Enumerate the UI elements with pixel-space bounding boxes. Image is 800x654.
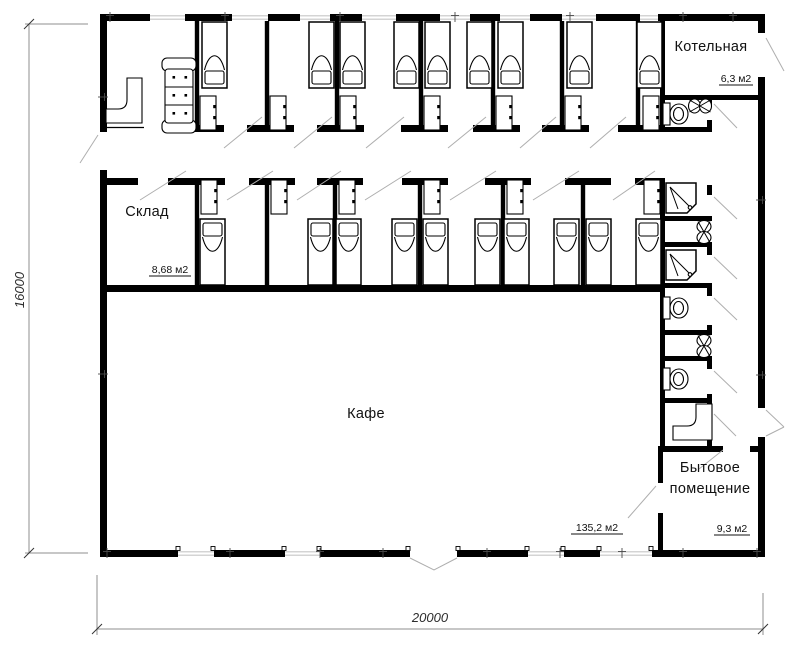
- bed-icon: [392, 219, 417, 285]
- room-label-boiler: Котельная: [675, 39, 748, 55]
- room-cafe: Кафе 135,2 м2: [347, 406, 623, 534]
- sofa-icon: [162, 58, 196, 133]
- bed-icon: [504, 219, 529, 285]
- floor-plan: 16000 20000 Котельная 6,3 м2 Склад 8,68 …: [0, 0, 800, 654]
- toilet-icon: [663, 103, 688, 125]
- wardrobe-icon: [507, 180, 523, 214]
- height-dimension-label: 16000: [12, 271, 27, 308]
- wardrobe-icon: [201, 180, 217, 214]
- wardrobe-icon: [424, 180, 440, 214]
- room-label-utility-line1: Бытовое: [680, 460, 740, 476]
- bed-icon: [467, 22, 492, 88]
- sink-icon: [697, 335, 711, 358]
- room-boiler: Котельная 6,3 м2: [675, 39, 753, 85]
- sink-icon: [689, 99, 712, 113]
- room-label-cafe: Кафе: [347, 406, 385, 422]
- room-area-cafe: 135,2 м2: [576, 522, 618, 534]
- bed-icon: [554, 219, 579, 285]
- toilet-icon: [663, 368, 688, 390]
- bed-icon: [340, 22, 365, 88]
- toilet-icon: [663, 297, 688, 319]
- bed-icon: [423, 219, 448, 285]
- room-label-utility-line2: помещение: [670, 481, 751, 497]
- wardrobe-icon: [643, 96, 659, 130]
- bed-icon: [636, 219, 661, 285]
- width-dimension-label: 20000: [411, 610, 449, 625]
- room-label-storage: Склад: [125, 204, 169, 220]
- room-area-boiler: 6,3 м2: [721, 73, 752, 85]
- reception-desk-icon: [106, 78, 142, 123]
- wardrobe-icon: [565, 96, 581, 130]
- counter-icon: [673, 404, 712, 440]
- bed-icon: [637, 22, 662, 88]
- wardrobe-icon: [496, 96, 512, 130]
- dimension-bottom: 20000: [92, 575, 768, 635]
- room-utility: Бытовое помещение 9,3 м2: [670, 460, 751, 535]
- wardrobe-icon: [644, 180, 660, 214]
- shower-icon: [666, 183, 696, 213]
- bed-icon: [202, 22, 227, 88]
- bed-icon: [394, 22, 419, 88]
- room-storage: Склад 8,68 м2: [125, 204, 191, 276]
- bed-icon: [567, 22, 592, 88]
- bed-icon: [336, 219, 361, 285]
- room-area-storage: 8,68 м2: [152, 264, 189, 276]
- dimension-left: 16000: [12, 19, 88, 558]
- wardrobe-icon: [200, 96, 216, 130]
- wardrobe-icon: [339, 180, 355, 214]
- wardrobe-icon: [271, 180, 287, 214]
- bedroom-furniture: [200, 22, 662, 285]
- bed-icon: [200, 219, 225, 285]
- wardrobe-icon: [424, 96, 440, 130]
- bed-icon: [498, 22, 523, 88]
- bed-icon: [475, 219, 500, 285]
- entrance-hall: [104, 58, 196, 133]
- bed-icon: [586, 219, 611, 285]
- wardrobe-icon: [340, 96, 356, 130]
- window-hooks: [176, 547, 653, 551]
- bed-icon: [425, 22, 450, 88]
- shower-icon: [666, 250, 696, 280]
- sink-icon: [697, 221, 711, 244]
- wardrobe-icon: [270, 96, 286, 130]
- room-area-utility: 9,3 м2: [717, 523, 748, 535]
- bed-icon: [309, 22, 334, 88]
- bed-icon: [308, 219, 333, 285]
- sanitary-fixtures: [663, 99, 712, 440]
